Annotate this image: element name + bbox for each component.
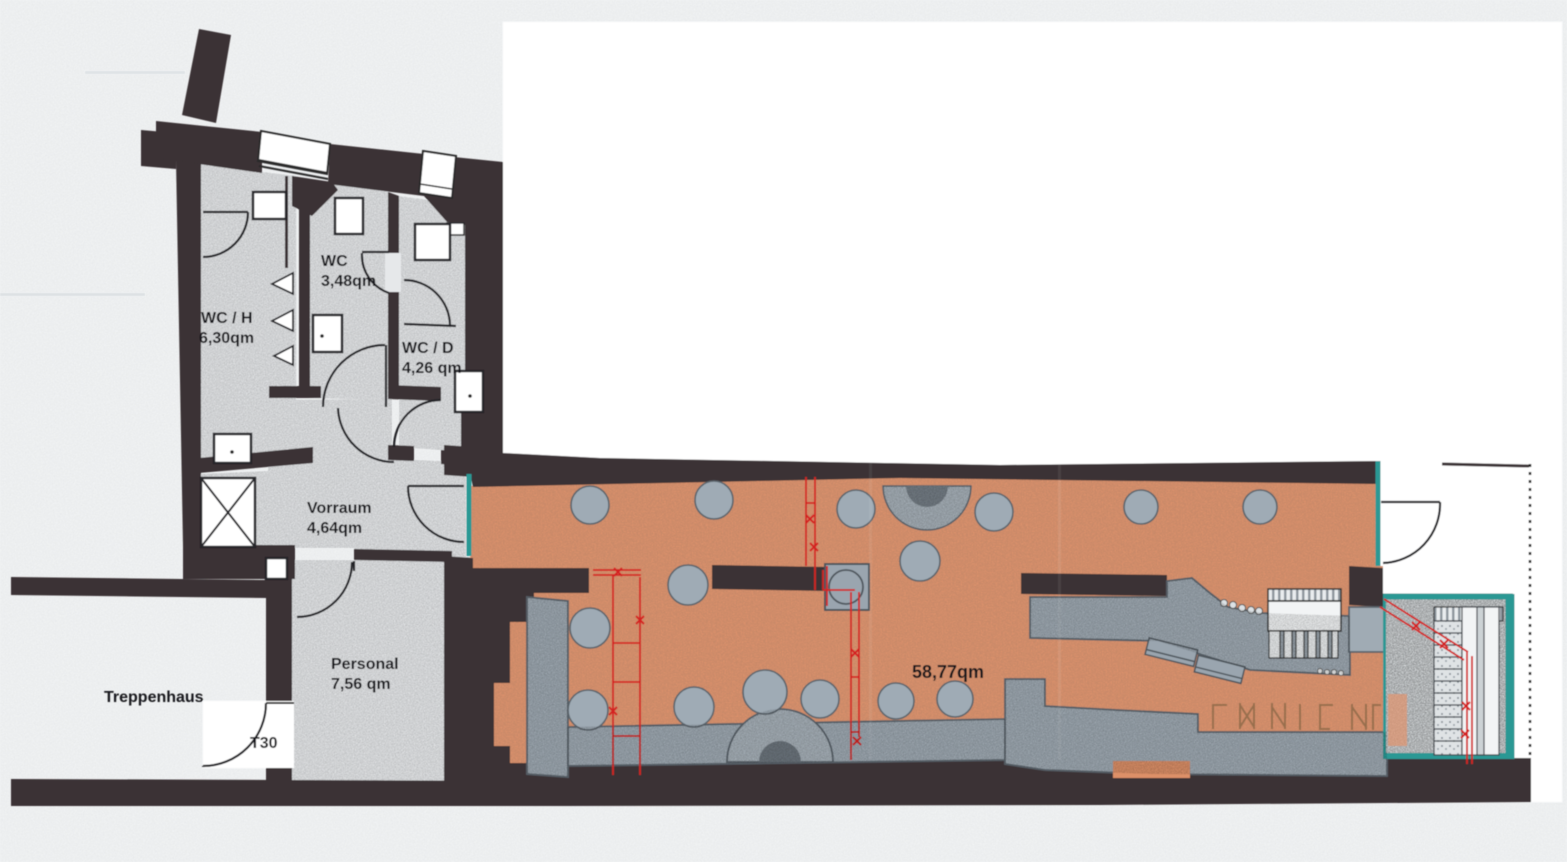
- svg-text:WC / H: WC / H: [201, 310, 253, 327]
- svg-text:58,77qm: 58,77qm: [912, 662, 984, 682]
- svg-text:4,64qm: 4,64qm: [307, 520, 362, 537]
- svg-text:T30: T30: [250, 735, 278, 752]
- svg-text:WC / D: WC / D: [402, 340, 454, 357]
- svg-text:Vorraum: Vorraum: [307, 500, 372, 517]
- svg-text:6,30qm: 6,30qm: [199, 330, 254, 347]
- svg-text:WC: WC: [321, 253, 348, 270]
- svg-text:Personal: Personal: [331, 656, 399, 673]
- svg-text:4,26 qm: 4,26 qm: [402, 360, 462, 377]
- svg-text:3,48qm: 3,48qm: [321, 273, 376, 290]
- svg-text:7,56 qm: 7,56 qm: [331, 676, 391, 693]
- svg-text:Treppenhaus: Treppenhaus: [104, 689, 204, 706]
